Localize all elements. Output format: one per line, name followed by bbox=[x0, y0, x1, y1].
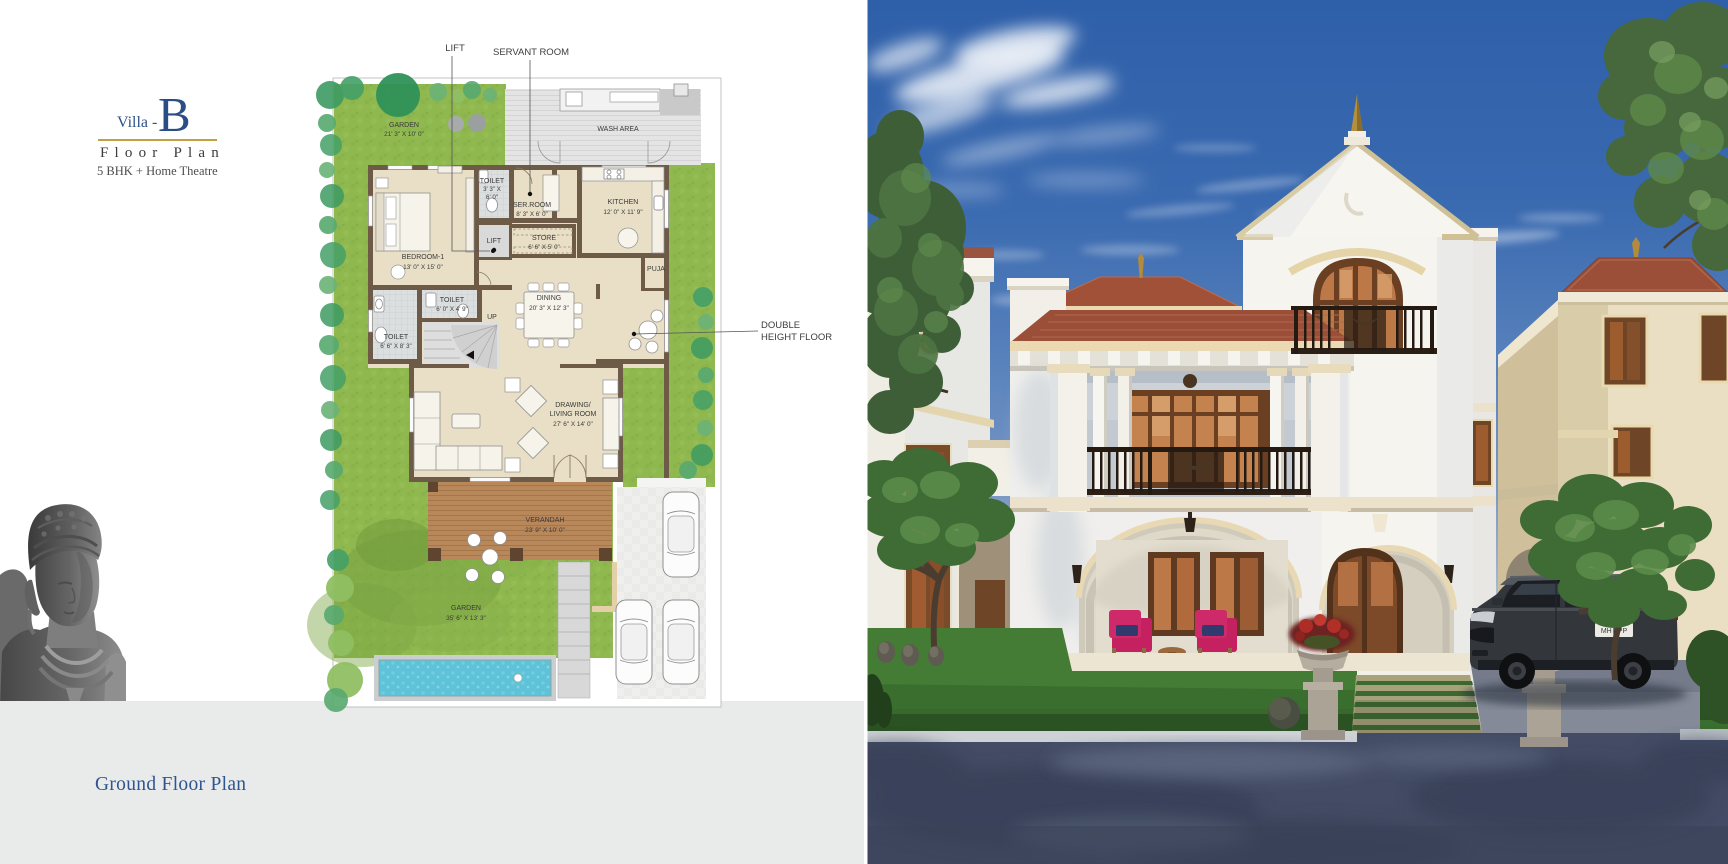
svg-text:LIVING ROOM: LIVING ROOM bbox=[550, 411, 597, 418]
svg-text:21' 3" X 10' 0": 21' 3" X 10' 0" bbox=[384, 131, 424, 138]
svg-text:27' 6" X 14' 0": 27' 6" X 14' 0" bbox=[553, 421, 593, 428]
svg-text:GARDEN: GARDEN bbox=[389, 122, 419, 129]
svg-text:DOUBLE: DOUBLE bbox=[761, 320, 800, 331]
svg-text:VERANDAH: VERANDAH bbox=[526, 517, 565, 524]
svg-text:20' 3" X 12' 3": 20' 3" X 12' 3" bbox=[529, 305, 569, 312]
svg-text:LIFT: LIFT bbox=[487, 238, 502, 245]
svg-text:BEDROOM-1: BEDROOM-1 bbox=[402, 254, 445, 261]
svg-text:SER.ROOM: SER.ROOM bbox=[513, 202, 551, 209]
svg-text:UP: UP bbox=[487, 314, 497, 321]
svg-text:6' 6" X 8' 3": 6' 6" X 8' 3" bbox=[380, 343, 412, 350]
svg-text:HEIGHT FLOOR: HEIGHT FLOOR bbox=[761, 332, 832, 343]
svg-text:TOILET: TOILET bbox=[384, 334, 409, 341]
svg-text:GARDEN: GARDEN bbox=[451, 605, 481, 612]
svg-text:6' 6" X 5' 0": 6' 6" X 5' 0" bbox=[528, 244, 560, 251]
svg-text:12' 0" X 11' 9": 12' 0" X 11' 9" bbox=[603, 209, 642, 216]
svg-text:KITCHEN: KITCHEN bbox=[608, 199, 639, 206]
svg-text:13' 0" X 15' 0": 13' 0" X 15' 0" bbox=[403, 264, 443, 271]
svg-text:23' 9" X 10' 0": 23' 9" X 10' 0" bbox=[525, 527, 565, 534]
svg-text:DINING: DINING bbox=[537, 295, 562, 302]
svg-text:DRAWING/: DRAWING/ bbox=[555, 402, 591, 409]
svg-text:35' 6" X 13' 3": 35' 6" X 13' 3" bbox=[446, 615, 486, 622]
svg-text:6' 0" X 4' 9": 6' 0" X 4' 9" bbox=[436, 306, 468, 313]
svg-text:PUJA: PUJA bbox=[647, 266, 665, 273]
svg-text:6' 0": 6' 0" bbox=[486, 194, 498, 201]
svg-text:8' 3" X 6' 0": 8' 3" X 6' 0" bbox=[516, 211, 548, 218]
svg-text:WASH AREA: WASH AREA bbox=[597, 126, 639, 133]
svg-text:TOILET: TOILET bbox=[440, 297, 465, 304]
svg-text:3' 3" X: 3' 3" X bbox=[483, 186, 501, 193]
svg-text:STORE: STORE bbox=[532, 235, 556, 242]
svg-text:LIFT: LIFT bbox=[445, 43, 465, 54]
svg-text:TOILET: TOILET bbox=[480, 178, 505, 185]
svg-text:SERVANT ROOM: SERVANT ROOM bbox=[493, 47, 569, 58]
